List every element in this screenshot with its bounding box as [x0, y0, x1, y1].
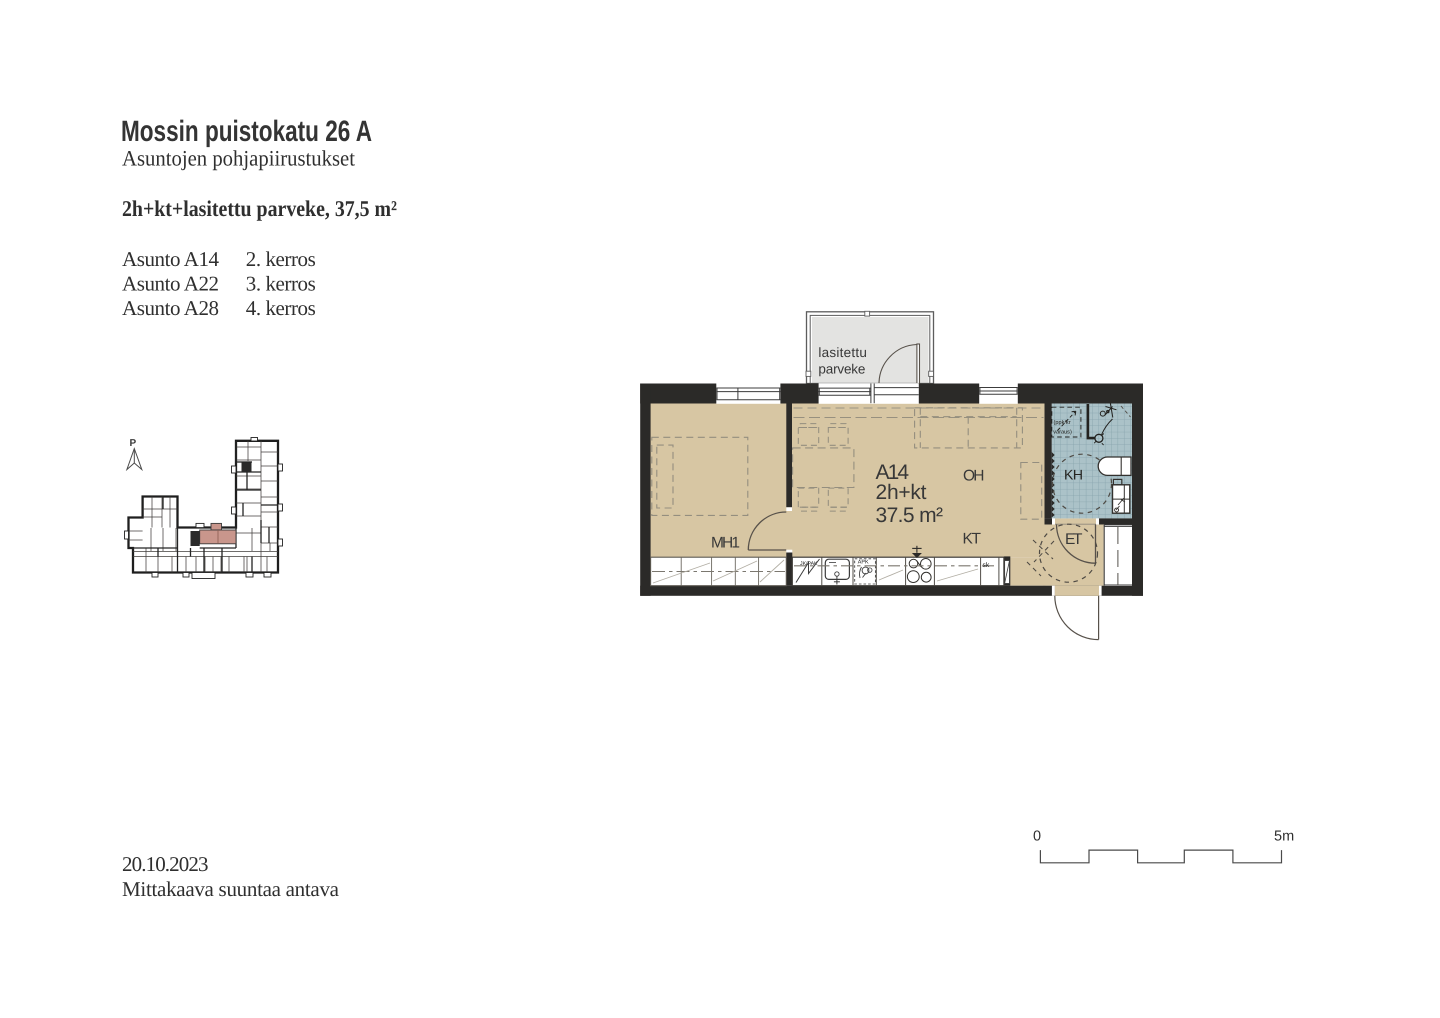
svg-text:parveke: parveke	[818, 361, 865, 376]
svg-text:Asunto A28: Asunto A28	[122, 296, 219, 320]
svg-text:KH: KH	[1064, 466, 1083, 482]
svg-text:lasitettu: lasitettu	[818, 345, 867, 360]
svg-text:Mossin puistokatu 26 A: Mossin puistokatu 26 A	[121, 115, 372, 148]
svg-text:3. kerros: 3. kerros	[246, 271, 316, 295]
svg-text:Mittakaava suuntaa antava: Mittakaava suuntaa antava	[122, 877, 340, 901]
svg-text:P: P	[130, 438, 137, 449]
svg-text:20.10.2023: 20.10.2023	[122, 852, 209, 876]
svg-text:37.5 m²: 37.5 m²	[876, 504, 944, 527]
svg-text:varaus): varaus)	[1053, 429, 1072, 436]
svg-text:KT: KT	[963, 531, 982, 548]
svg-text:Asunto A14: Asunto A14	[122, 247, 220, 271]
svg-text:MH1: MH1	[711, 534, 740, 551]
svg-text:0: 0	[1033, 829, 1041, 845]
svg-text:sk: sk	[983, 562, 990, 569]
svg-text:Asunto A22: Asunto A22	[122, 271, 219, 295]
svg-text:Asuntojen pohjapiirustukset: Asuntojen pohjapiirustukset	[122, 146, 355, 171]
svg-text:2h+kt+lasitettu parveke, 37,5: 2h+kt+lasitettu parveke, 37,5 m²	[122, 196, 397, 221]
svg-text:2h+kt: 2h+kt	[876, 481, 927, 504]
svg-text:OH: OH	[963, 468, 985, 485]
svg-text:4. kerros: 4. kerros	[246, 296, 316, 320]
svg-text:2. kerros: 2. kerros	[246, 247, 316, 271]
svg-text:ET: ET	[1065, 531, 1083, 548]
svg-text:(ppk/kr: (ppk/kr	[1054, 419, 1071, 426]
svg-text:5m: 5m	[1274, 829, 1294, 845]
svg-text:APK: APK	[858, 560, 869, 566]
